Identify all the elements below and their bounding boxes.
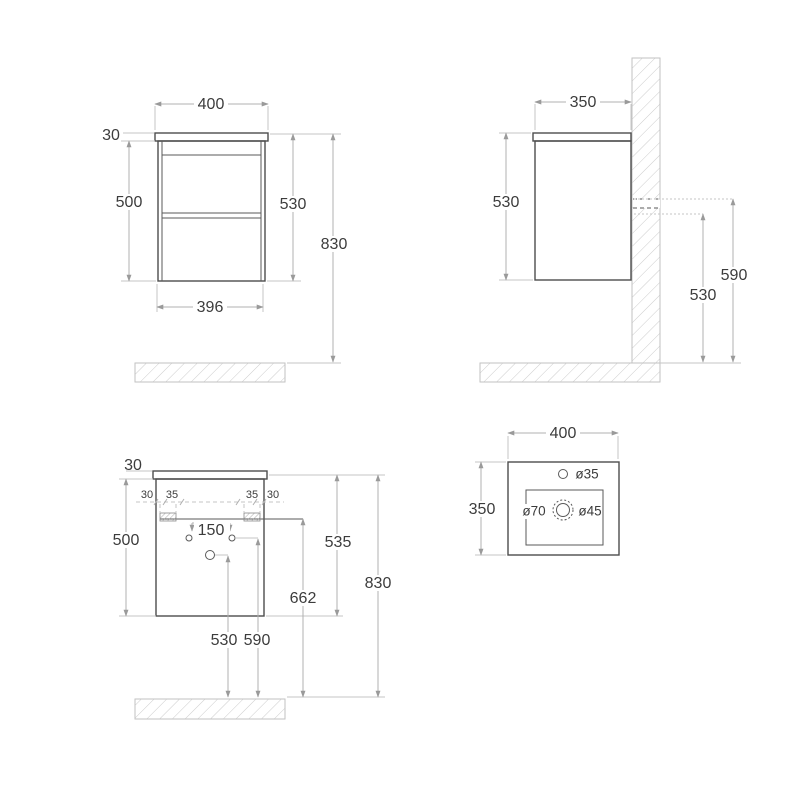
- dim-back-bracket-height: 662: [290, 590, 317, 607]
- wall-hatch: [632, 58, 660, 363]
- dim-basin-drain: ø45: [578, 504, 601, 519]
- floor-hatch: [135, 699, 285, 719]
- dim-back-left-bracket-width: 35: [166, 489, 178, 501]
- faucet-hole: [559, 470, 568, 479]
- dim-front-total-height: 830: [321, 236, 348, 253]
- basin-top-view: 400 350 ø35 ø70 ø45: [465, 425, 619, 555]
- dim-side-depth: 350: [570, 94, 597, 111]
- drain-circle: [557, 504, 570, 517]
- wall-bracket-area: [633, 199, 660, 208]
- dim-back-unit-height: 535: [325, 534, 352, 551]
- dim-front-width-top: 400: [198, 96, 225, 113]
- back-view: 30 35 35 30 30 500 150 590 530: [109, 457, 395, 719]
- dim-front-carcass-height: 500: [116, 194, 143, 211]
- dim-back-top-thickness: 30: [124, 457, 142, 474]
- dim-front-cabinet-height: 530: [280, 196, 307, 213]
- dim-side-upper-fixing-height: 590: [721, 267, 748, 284]
- drain-hole: [206, 551, 215, 560]
- side-view: 350 530 590 530: [480, 58, 751, 382]
- dim-side-cabinet-height: 530: [493, 194, 520, 211]
- dim-back-carcass-height: 500: [113, 532, 140, 549]
- hanging-bracket-right: [244, 513, 260, 521]
- dim-basin-depth: 350: [469, 501, 496, 518]
- countertop-front: [155, 133, 268, 141]
- supply-hole-left: [186, 535, 192, 541]
- front-view: 400 30 500 530 830 396: [102, 96, 351, 382]
- floor-hatch: [480, 363, 660, 382]
- dim-front-top-thickness: 30: [102, 127, 120, 144]
- dim-back-right-edge-offset: 30: [267, 489, 279, 501]
- cabinet-body-side: [535, 141, 631, 280]
- dim-back-total-height: 830: [365, 575, 392, 592]
- dim-front-width-bottom: 396: [197, 299, 224, 316]
- dim-basin-overflow: ø70: [522, 504, 545, 519]
- hanging-bracket-left: [160, 513, 176, 521]
- technical-drawing-sheet: 400 30 500 530 830 396: [0, 0, 800, 800]
- cabinet-body-front: [158, 141, 265, 281]
- dim-basin-faucet-hole: ø35: [575, 467, 598, 482]
- dim-back-drain-hole-height: 530: [211, 632, 238, 649]
- vanity-dimension-drawing: 400 30 500 530 830 396: [0, 0, 800, 800]
- dim-back-right-bracket-width: 35: [246, 489, 258, 501]
- floor-hatch: [135, 363, 285, 382]
- dim-back-left-edge-offset: 30: [141, 489, 153, 501]
- dim-basin-width: 400: [550, 425, 577, 442]
- countertop-side: [533, 133, 631, 141]
- dim-side-lower-fixing-height: 530: [690, 287, 717, 304]
- dim-back-hole-spacing: 150: [198, 522, 225, 539]
- dim-back-supply-hole-height: 590: [244, 632, 271, 649]
- countertop-back: [153, 471, 267, 479]
